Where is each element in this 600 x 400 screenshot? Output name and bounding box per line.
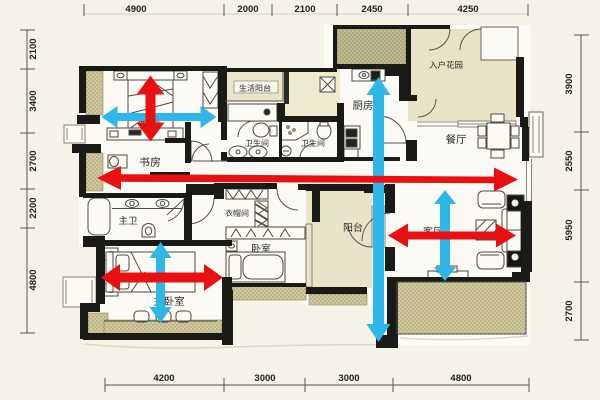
svg-text:2550: 2550 [564,150,575,171]
svg-text:3000: 3000 [254,373,275,384]
svg-text:4800: 4800 [450,373,471,384]
svg-text:4250: 4250 [457,4,478,15]
svg-text:4900: 4900 [125,4,146,15]
svg-text:2700: 2700 [28,150,39,171]
svg-text:2450: 2450 [361,4,382,15]
svg-text:2200: 2200 [28,197,39,218]
svg-text:2100: 2100 [28,38,39,59]
svg-text:3000: 3000 [338,373,359,384]
svg-text:3900: 3900 [564,73,575,94]
svg-text:4800: 4800 [28,269,39,290]
svg-text:3400: 3400 [28,90,39,111]
svg-text:2000: 2000 [237,4,258,15]
svg-text:2700: 2700 [564,300,575,321]
svg-text:5950: 5950 [564,219,575,240]
svg-text:4200: 4200 [153,373,174,384]
svg-text:2100: 2100 [294,4,315,15]
